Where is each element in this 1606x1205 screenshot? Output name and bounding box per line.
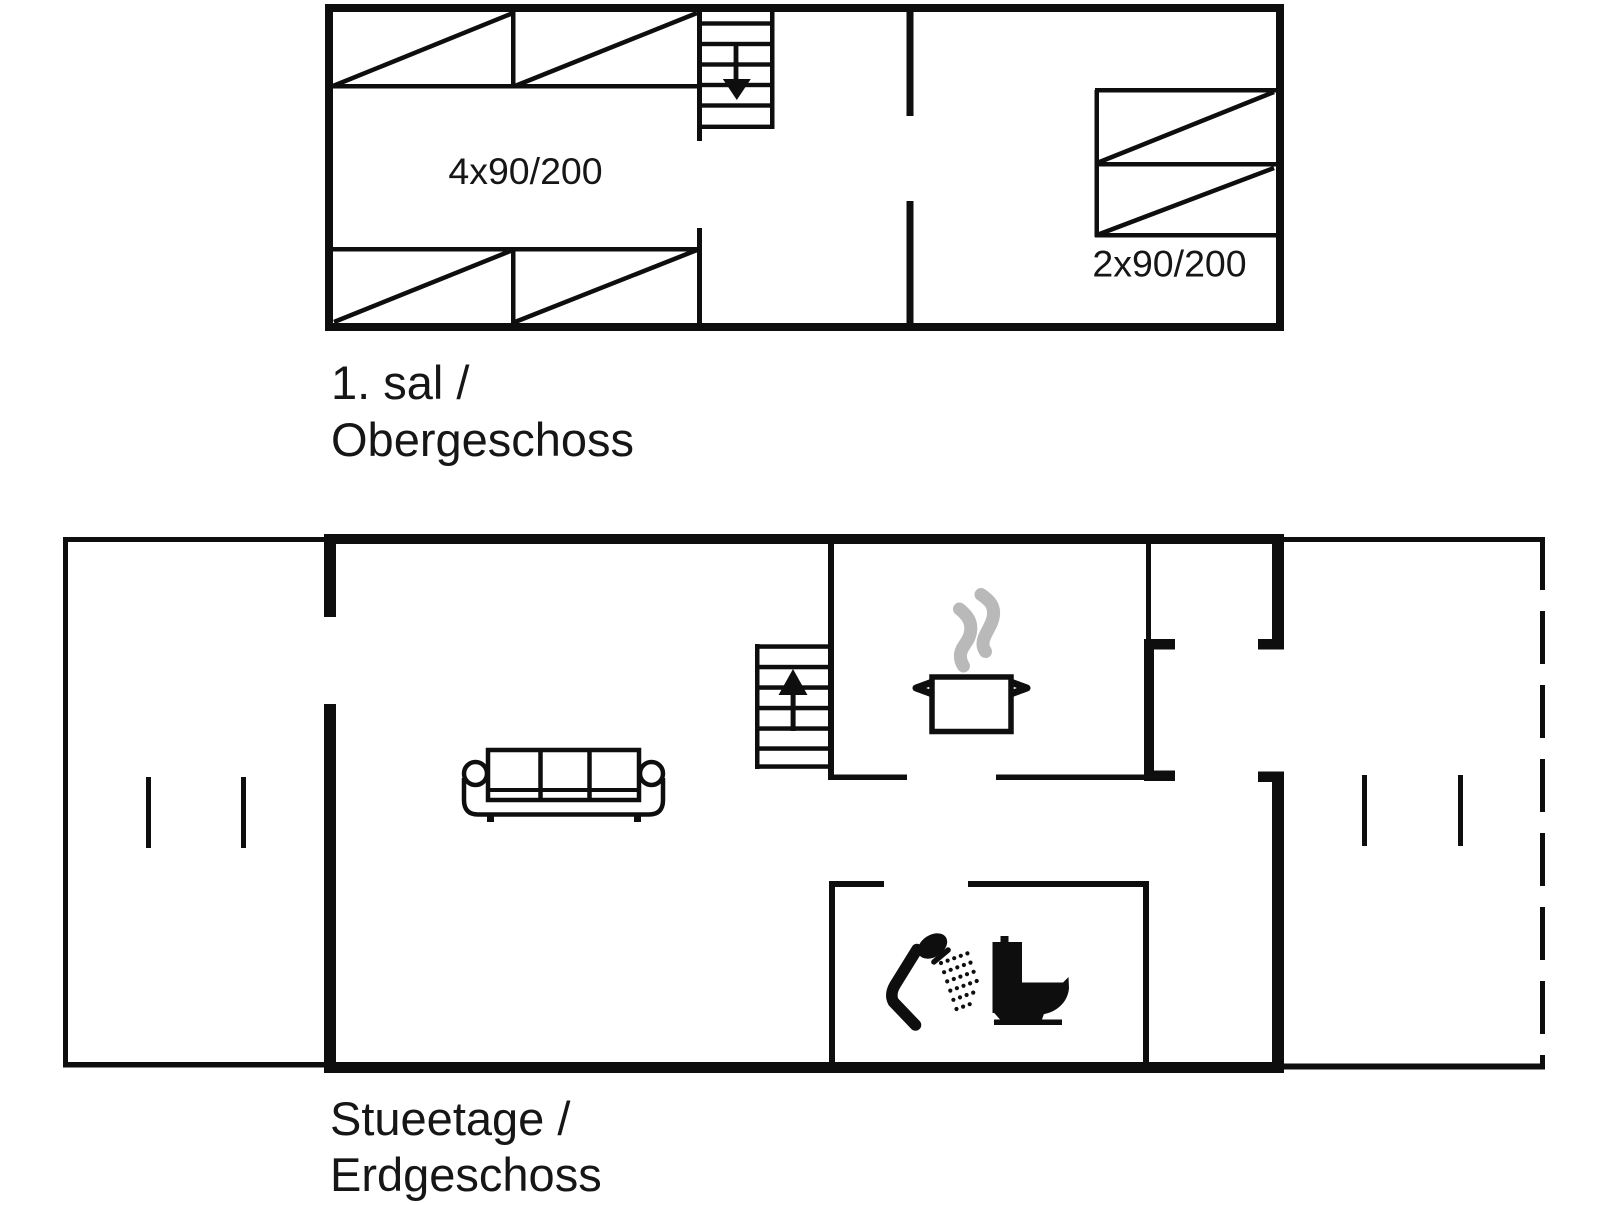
svg-text:Stueetage /: Stueetage / bbox=[330, 1092, 571, 1145]
svg-text:4x90/200: 4x90/200 bbox=[448, 150, 602, 192]
svg-text:1. sal /: 1. sal / bbox=[331, 356, 470, 409]
svg-text:2x90/200: 2x90/200 bbox=[1092, 243, 1246, 285]
svg-text:Obergeschoss: Obergeschoss bbox=[331, 413, 634, 466]
svg-text:Erdgeschoss: Erdgeschoss bbox=[330, 1148, 602, 1201]
